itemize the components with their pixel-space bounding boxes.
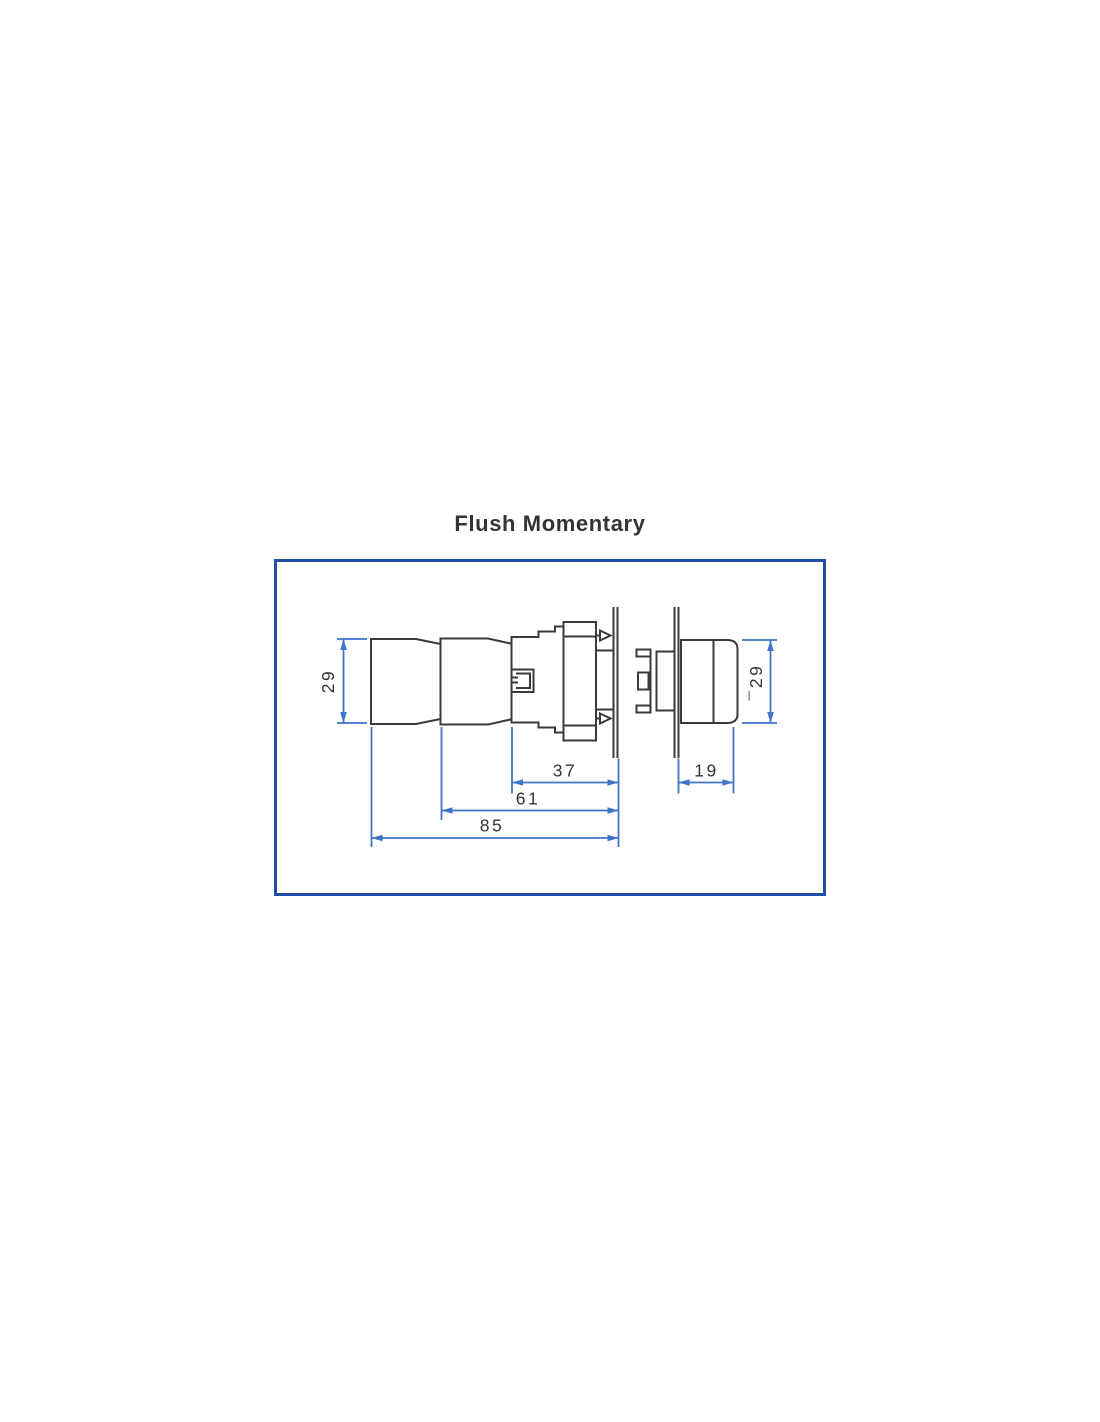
dim-label-29-left: 29 [318, 669, 338, 693]
latch-clip-bottom-icon [600, 714, 611, 724]
panel-left-section [614, 608, 618, 757]
arrow-right-icon [608, 807, 619, 814]
locking-collar-key-detail [638, 673, 649, 690]
locking-collar-outline [637, 650, 675, 713]
arrow-left-icon [442, 807, 453, 814]
push-button-dimension-drawing: 29 ¯29 37 19 61 [0, 0, 1100, 1422]
terminal-notch-detail [512, 670, 534, 693]
latch-clip-top-icon [600, 631, 611, 641]
dim-label-37: 37 [553, 761, 577, 781]
mounting-flange-outline [564, 622, 597, 741]
dim-29-left-lines [337, 639, 367, 723]
latch-clip-tails [596, 636, 613, 719]
arrow-right-icon [608, 835, 619, 842]
arrow-up-icon [767, 640, 774, 651]
arrow-right-icon [723, 779, 734, 786]
arrow-left-icon [512, 779, 523, 786]
dimension-annotations: 29 ¯29 37 19 61 [318, 639, 777, 847]
arrow-left-icon [679, 779, 690, 786]
mounting-flange-inner-lines [564, 637, 597, 726]
dim-label-85: 85 [480, 816, 504, 836]
arrow-up-icon [340, 639, 347, 650]
arrow-left-icon [372, 835, 383, 842]
push-button-side-view [371, 608, 738, 757]
dim-label-19: 19 [694, 761, 718, 781]
arrow-down-icon [767, 712, 774, 723]
arrow-down-icon [340, 712, 347, 723]
panel-right-section [675, 608, 679, 757]
dim-label-29-right: ¯29 [746, 664, 766, 702]
button-head-outline [681, 640, 738, 723]
arrow-right-icon [608, 779, 619, 786]
catalog-page: Flush Momentary [0, 0, 1100, 1422]
contact-block-outline [512, 627, 564, 733]
operator-boot-outline [371, 639, 441, 724]
operator-body-outline [441, 639, 511, 725]
dim-label-61: 61 [516, 789, 540, 809]
